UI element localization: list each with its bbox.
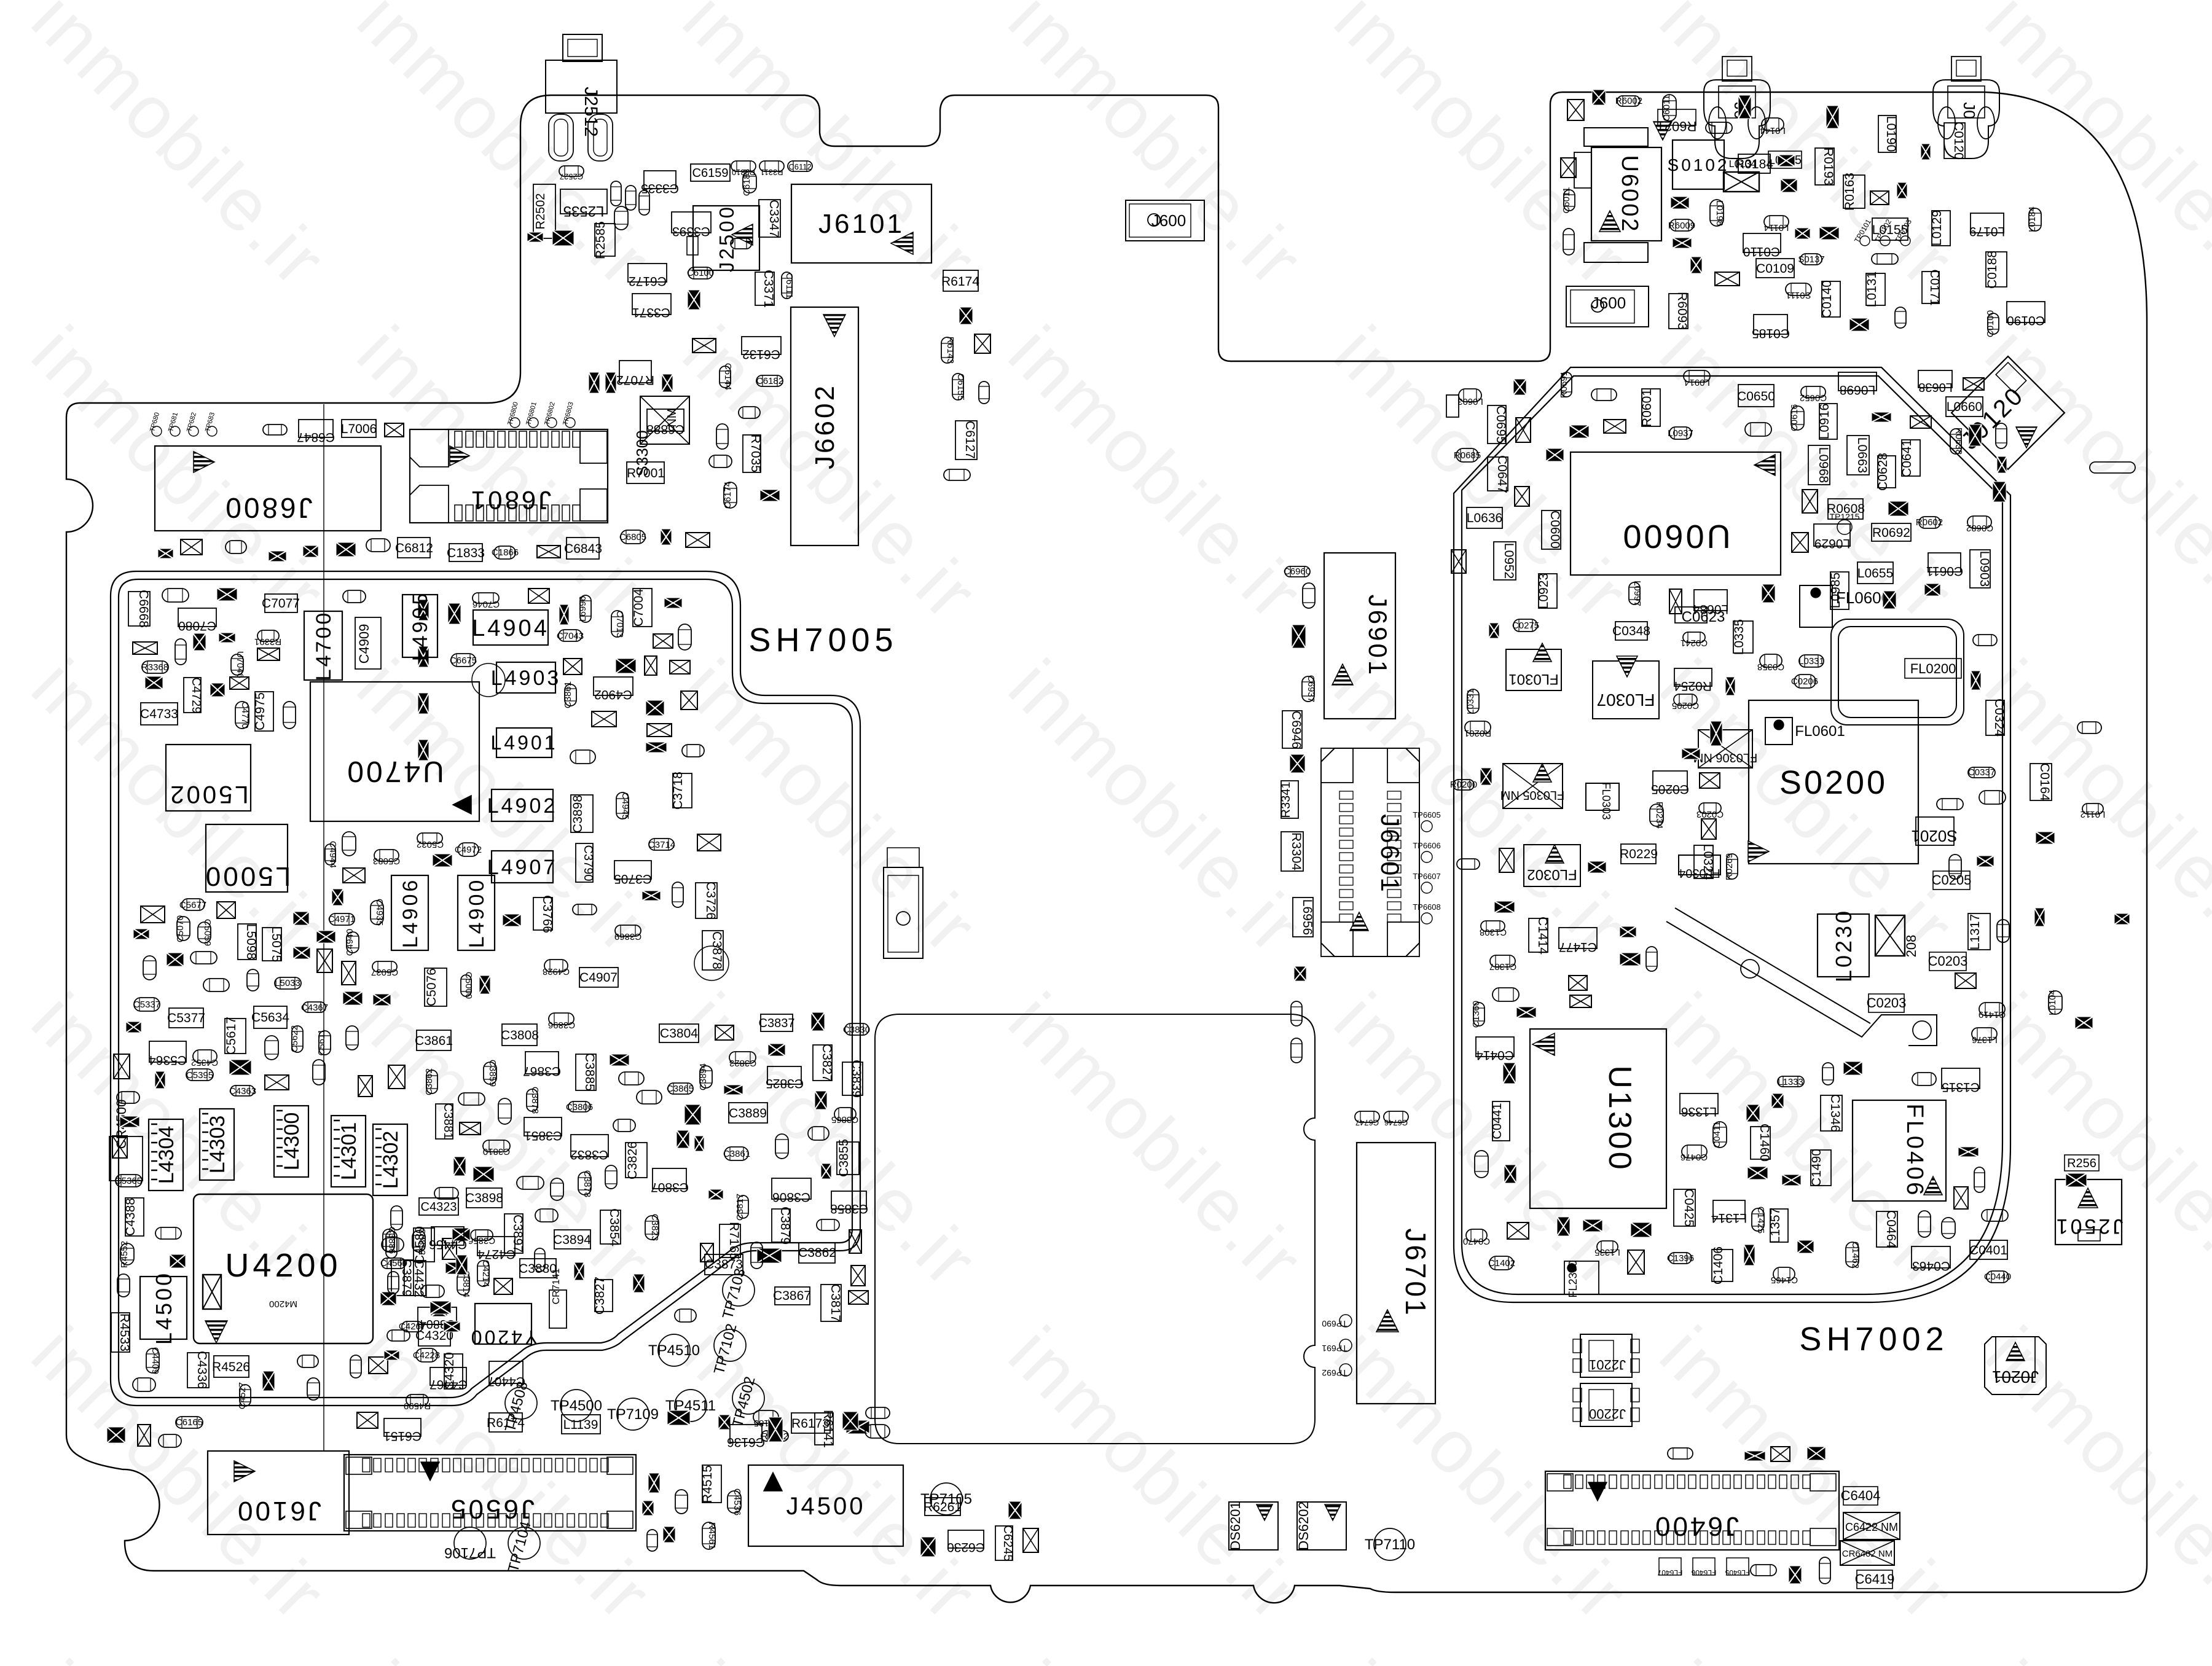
svg-text:R6174: R6174	[487, 1416, 525, 1430]
svg-text:C0205: C0205	[1651, 782, 1689, 796]
svg-text:C4971: C4971	[328, 914, 355, 925]
svg-text:C1387: C1387	[1489, 961, 1516, 972]
svg-text:DS6202: DS6202	[1296, 1501, 1311, 1551]
svg-text:L0603: L0603	[1457, 396, 1483, 407]
svg-text:C6937: C6937	[1306, 675, 1316, 702]
svg-text:C6136: C6136	[727, 1435, 765, 1449]
svg-text:L6956: L6956	[1300, 899, 1314, 935]
svg-text:C3823: C3823	[729, 1058, 756, 1068]
svg-text:C3832: C3832	[570, 1148, 608, 1162]
svg-text:C3806: C3806	[566, 1102, 593, 1113]
svg-text:R4561: R4561	[707, 1522, 717, 1549]
svg-text:L4300: L4300	[280, 1113, 304, 1171]
svg-text:L0190: L0190	[1884, 116, 1898, 152]
svg-text:C4388: C4388	[124, 1198, 138, 1236]
svg-text:C2527: C2527	[560, 172, 583, 181]
svg-text:C4536: C4536	[732, 1488, 742, 1515]
svg-text:C3826: C3826	[626, 1141, 640, 1179]
svg-text:C6151: C6151	[383, 1429, 422, 1443]
svg-text:FL0406: FL0406	[1902, 1104, 1928, 1198]
svg-text:C6111: C6111	[784, 273, 794, 299]
svg-text:L4303: L4303	[206, 1116, 229, 1174]
svg-text:J6602: J6602	[810, 383, 840, 469]
svg-text:L0112: L0112	[2081, 809, 2106, 819]
svg-text:J4500: J4500	[786, 1493, 866, 1520]
svg-text:C1425: C1425	[1755, 1206, 1766, 1234]
svg-text:TP6605: TP6605	[1413, 810, 1441, 819]
svg-text:L5000: L5000	[203, 861, 291, 891]
svg-text:L0903: L0903	[1977, 551, 1991, 587]
svg-text:C4729: C4729	[189, 678, 203, 714]
svg-text:S0200: S0200	[1779, 764, 1888, 801]
svg-text:R0229: R0229	[1620, 847, 1658, 861]
svg-text:S0111: S0111	[1786, 290, 1811, 300]
svg-text:C3869: C3869	[614, 931, 641, 942]
svg-text:C3371: C3371	[761, 270, 775, 308]
svg-text:C0109: C0109	[1756, 262, 1794, 276]
svg-text:C0611: C0611	[1926, 564, 1963, 578]
svg-text:L1333: L1333	[1778, 1077, 1803, 1087]
svg-text:C6165: C6165	[176, 1417, 203, 1428]
svg-text:R0608: R0608	[1827, 502, 1865, 516]
svg-text:C3897: C3897	[511, 1214, 525, 1253]
svg-text:R6143: R6143	[945, 337, 955, 364]
svg-text:U7046: U7046	[235, 651, 245, 678]
svg-text:R4533: R4533	[117, 1313, 131, 1351]
svg-text:C0414: C0414	[1476, 1048, 1514, 1062]
svg-text:C0337: C0337	[1968, 767, 1995, 778]
svg-text:FL0306 NM: FL0306 NM	[1693, 751, 1758, 764]
svg-text:DS6201: DS6201	[1228, 1501, 1243, 1551]
svg-text:M4200: M4200	[269, 1299, 297, 1309]
svg-text:C3894: C3894	[698, 1063, 708, 1090]
svg-text:R4515: R4515	[700, 1465, 715, 1503]
svg-text:L0129: L0129	[1930, 210, 1944, 246]
svg-text:C3889: C3889	[729, 1106, 767, 1120]
svg-text:U4200: U4200	[225, 1247, 341, 1284]
svg-text:R3304: R3304	[1289, 832, 1303, 870]
svg-text:C6159: C6159	[692, 166, 729, 180]
svg-text:C0401: C0401	[1969, 1243, 2007, 1257]
svg-text:J0201: J0201	[1992, 1367, 2039, 1386]
svg-text:C7046: C7046	[473, 599, 500, 609]
svg-text:C1477: C1477	[1559, 940, 1597, 954]
svg-text:C3817: C3817	[828, 1284, 842, 1322]
svg-text:C3898: C3898	[571, 795, 585, 833]
svg-text:C3808: C3808	[501, 1028, 539, 1042]
svg-text:R4599: R4599	[404, 1401, 431, 1411]
svg-text:C0616: C0616	[1789, 404, 1800, 431]
svg-text:C5377: C5377	[167, 1011, 205, 1025]
svg-text:C3766: C3766	[540, 895, 554, 933]
svg-text:C4367: C4367	[301, 1003, 328, 1013]
svg-text:L5075: L5075	[269, 926, 283, 962]
svg-text:C4274: C4274	[477, 1247, 516, 1261]
svg-text:C1402: C1402	[1488, 1258, 1515, 1269]
svg-text:L0198: L0198	[1714, 200, 1725, 226]
svg-text:C3885: C3885	[582, 1053, 597, 1091]
svg-text:R2502: R2502	[534, 194, 547, 230]
svg-text:L0952: L0952	[1502, 543, 1516, 579]
svg-text:C6960: C6960	[1284, 566, 1311, 577]
svg-text:C5083: C5083	[373, 856, 400, 866]
svg-text:R6002: R6002	[1615, 96, 1642, 106]
svg-text:C5611: C5611	[316, 1029, 327, 1055]
svg-text:R0201: R0201	[1464, 728, 1491, 738]
svg-text:C4907: C4907	[579, 971, 618, 985]
svg-text:C3862: C3862	[424, 1068, 434, 1095]
svg-text:C4580: C4580	[413, 1226, 427, 1264]
svg-text:C6183: C6183	[742, 169, 752, 196]
svg-text:U0600: U0600	[1620, 518, 1730, 555]
svg-text:C4407: C4407	[487, 1374, 525, 1388]
svg-text:CR6402 NM: CR6402 NM	[1842, 1549, 1893, 1559]
svg-text:L0698: L0698	[1840, 383, 1875, 397]
svg-text:C0203: C0203	[1928, 953, 1968, 969]
svg-text:FL0307: FL0307	[1597, 690, 1655, 710]
svg-text:TP690: TP690	[1322, 1319, 1347, 1329]
svg-text:TP7110: TP7110	[1365, 1536, 1415, 1553]
svg-text:C0682: C0682	[1966, 523, 1993, 533]
svg-text:C3851: C3851	[524, 1128, 562, 1143]
svg-text:C1866: C1866	[492, 547, 519, 558]
svg-text:TP6608: TP6608	[1413, 902, 1441, 912]
svg-text:R0602: R0602	[1916, 517, 1943, 528]
svg-text:R7072: R7072	[616, 373, 654, 387]
svg-text:R0601: R0601	[1640, 389, 1654, 427]
svg-text:C5000: C5000	[463, 972, 474, 999]
svg-text:C4467: C4467	[429, 1377, 468, 1391]
svg-text:C4733: C4733	[140, 707, 178, 721]
svg-text:C3790: C3790	[581, 845, 595, 882]
svg-text:C3881: C3881	[441, 1103, 455, 1140]
svg-text:L0131: L0131	[1865, 272, 1879, 307]
svg-text:C0275: C0275	[1512, 620, 1539, 631]
svg-text:C0425: C0425	[1682, 1189, 1696, 1227]
svg-text:C4432: C4432	[412, 1259, 426, 1297]
svg-text:R7035: R7035	[748, 434, 763, 472]
svg-text:C1414: C1414	[1535, 917, 1550, 955]
svg-text:C3859: C3859	[487, 1060, 498, 1087]
svg-text:SH7005: SH7005	[748, 622, 898, 659]
svg-text:C4409: C4409	[150, 1347, 160, 1374]
svg-text:C3825: C3825	[766, 1076, 804, 1090]
svg-text:L0985: L0985	[1829, 573, 1843, 608]
svg-text:C4770: C4770	[240, 702, 250, 729]
svg-text:J600: J600	[1591, 294, 1626, 312]
svg-text:J6100: J6100	[235, 1496, 321, 1526]
svg-text:C6888: C6888	[646, 422, 684, 436]
svg-text:TP691: TP691	[1322, 1343, 1347, 1353]
svg-text:C0650: C0650	[1737, 389, 1775, 404]
svg-text:L0155: L0155	[1872, 223, 1908, 237]
svg-text:C7013: C7013	[614, 611, 625, 638]
svg-text:C3827: C3827	[820, 1044, 834, 1082]
svg-text:C1465: C1465	[1771, 1275, 1798, 1285]
svg-text:C3718: C3718	[671, 772, 685, 810]
svg-text:C3705: C3705	[614, 872, 652, 886]
svg-text:C3839: C3839	[849, 1060, 863, 1098]
svg-text:C3878: C3878	[710, 931, 724, 969]
svg-text:C6805: C6805	[619, 532, 646, 542]
svg-text:L4904: L4904	[472, 616, 549, 641]
svg-text:R0254: R0254	[1674, 679, 1712, 693]
svg-text:C6230: C6230	[947, 1540, 985, 1554]
svg-text:C0695: C0695	[1494, 405, 1508, 444]
svg-text:C6245: C6245	[1001, 1525, 1014, 1562]
svg-text:J2512: J2512	[581, 87, 601, 137]
svg-text:C3898: C3898	[465, 1191, 503, 1205]
svg-text:C0203: C0203	[1696, 809, 1724, 819]
svg-text:FL0601: FL0601	[1795, 723, 1845, 740]
svg-text:C4940: C4940	[345, 929, 355, 956]
svg-text:L0968: L0968	[1816, 447, 1830, 483]
svg-text:TP692: TP692	[1322, 1368, 1347, 1378]
svg-text:R0184: R0184	[1735, 157, 1773, 171]
svg-text:L0184: L0184	[2027, 206, 2037, 232]
svg-text:C7004: C7004	[632, 589, 646, 627]
svg-text:C4228: C4228	[413, 1350, 440, 1361]
svg-text:TP7106: TP7106	[444, 1544, 496, 1561]
svg-text:C3837: C3837	[759, 1017, 795, 1030]
svg-text:C5059: C5059	[202, 919, 213, 946]
svg-text:TP4510: TP4510	[648, 1342, 700, 1359]
svg-text:L0144: L0144	[1760, 125, 1786, 136]
svg-text:C0358: C0358	[1757, 662, 1784, 672]
svg-text:C3861: C3861	[415, 1034, 453, 1048]
svg-text:C4352: C4352	[191, 1057, 218, 1068]
svg-text:C3714: C3714	[648, 840, 675, 850]
svg-text:FL6405: FL6405	[1725, 1568, 1750, 1577]
svg-text:R2585: R2585	[594, 221, 608, 259]
svg-text:C3861: C3861	[723, 1149, 750, 1159]
svg-text:FL0303: FL0303	[1600, 782, 1612, 819]
svg-text:R6261: R6261	[924, 1500, 962, 1514]
svg-text:C6011: C6011	[1661, 95, 1672, 121]
svg-text:C1346: C1346	[1828, 1094, 1842, 1132]
svg-text:C1462: C1462	[1850, 1242, 1861, 1269]
svg-text:C6419: C6419	[1855, 1571, 1895, 1587]
svg-text:L4301: L4301	[337, 1122, 361, 1181]
svg-text:C3830: C3830	[843, 1025, 870, 1035]
svg-text:R0234: R0234	[1654, 802, 1665, 829]
svg-text:C4214: C4214	[480, 1260, 491, 1287]
svg-text:C5032: C5032	[417, 839, 444, 850]
svg-text:C3393: C3393	[672, 224, 710, 238]
svg-text:J6400: J6400	[1653, 1511, 1739, 1541]
svg-text:C5395: C5395	[186, 1070, 213, 1081]
svg-text:L0114: L0114	[1764, 222, 1789, 233]
svg-text:J6101: J6101	[818, 209, 904, 239]
svg-text:C0463: C0463	[1912, 1259, 1950, 1273]
svg-text:C3335: C3335	[641, 181, 679, 195]
svg-text:J6701: J6701	[1400, 1228, 1432, 1317]
svg-text:C0600: C0600	[1548, 510, 1562, 549]
svg-text:C4336: C4336	[195, 1351, 209, 1389]
svg-text:L0916: L0916	[1818, 404, 1832, 439]
svg-text:R0200: R0200	[1450, 780, 1477, 790]
svg-text:R3391: R3391	[254, 636, 281, 647]
svg-text:L1314: L1314	[1711, 1211, 1747, 1225]
svg-text:L0655: L0655	[1857, 566, 1893, 581]
svg-text:U1300: U1300	[1602, 1065, 1637, 1171]
svg-text:L0997: L0997	[1632, 581, 1642, 606]
svg-text:C0441: C0441	[1491, 1103, 1504, 1140]
svg-text:FL0302: FL0302	[1527, 866, 1577, 883]
svg-text:J6901: J6901	[1363, 595, 1392, 677]
svg-text:C3894: C3894	[553, 1233, 591, 1247]
svg-text:FL6406: FL6406	[1691, 1568, 1716, 1577]
svg-text:TP4500: TP4500	[551, 1398, 602, 1414]
svg-text:C6100: C6100	[687, 268, 714, 278]
svg-text:L0629: L0629	[1814, 536, 1850, 550]
svg-text:R4526: R4526	[212, 1360, 250, 1374]
svg-text:TP6607: TP6607	[1413, 872, 1441, 881]
svg-text:C4944: C4944	[327, 841, 338, 868]
svg-text:C0348: C0348	[1612, 624, 1650, 638]
svg-text:C6946: C6946	[1289, 711, 1303, 749]
svg-text:R6093: R6093	[1675, 292, 1689, 330]
svg-text:U6002: U6002	[1617, 155, 1642, 233]
svg-text:C4456: C4456	[429, 1237, 467, 1251]
svg-text:R3368: R3368	[141, 662, 168, 673]
svg-text:L0663: L0663	[1855, 437, 1869, 473]
svg-text:C6668: C6668	[136, 590, 151, 628]
svg-text:FL2300: FL2300	[1567, 1260, 1579, 1297]
svg-text:L7006: L7006	[341, 422, 377, 436]
svg-text:L0104: L0104	[2047, 990, 2058, 1015]
svg-text:C0324: C0324	[1992, 698, 2006, 737]
svg-text:J2200: J2200	[1589, 1406, 1626, 1422]
svg-text:L0684: L0684	[1692, 602, 1728, 616]
svg-text:L0638: L0638	[1918, 380, 1953, 394]
svg-text:C1490: C1490	[1810, 1149, 1824, 1187]
svg-text:C3810: C3810	[483, 1146, 510, 1157]
svg-text:C1460: C1460	[1757, 1124, 1771, 1162]
svg-text:C6404: C6404	[1841, 1488, 1881, 1503]
svg-text:C6132: C6132	[742, 347, 780, 361]
svg-text:L4907: L4907	[487, 856, 558, 879]
svg-text:C1315: C1315	[1942, 1080, 1980, 1094]
svg-text:C7080: C7080	[178, 619, 216, 633]
svg-text:L0331: L0331	[1465, 689, 1476, 714]
svg-text:C0190: C0190	[2007, 313, 2045, 327]
svg-text:R6173: R6173	[791, 1417, 829, 1431]
svg-text:C3865: C3865	[831, 1114, 858, 1125]
svg-text:L1336: L1336	[1681, 1105, 1717, 1119]
svg-text:C3878: C3878	[582, 1170, 592, 1197]
svg-text:L0324: L0324	[1701, 844, 1715, 880]
svg-text:C3862: C3862	[798, 1246, 836, 1260]
svg-text:C0205: C0205	[1932, 872, 1972, 888]
svg-text:J2201: J2201	[1589, 1357, 1626, 1372]
svg-text:R6174: R6174	[941, 275, 979, 289]
svg-text:C1833: C1833	[447, 546, 485, 560]
svg-text:C0205: C0205	[1672, 700, 1699, 711]
svg-text:C0641: C0641	[1900, 439, 1914, 477]
svg-text:R4552: R4552	[119, 1241, 130, 1268]
svg-text:C3347: C3347	[767, 200, 781, 238]
svg-text:L0660: L0660	[1947, 400, 1982, 414]
svg-text:C3865: C3865	[667, 1084, 694, 1094]
svg-text:C3726: C3726	[704, 882, 718, 920]
svg-text:L1335: L1335	[1594, 1247, 1620, 1257]
svg-text:C4527: C4527	[237, 1382, 248, 1409]
svg-text:C0140: C0140	[1820, 280, 1834, 318]
svg-text:C5037: C5037	[371, 967, 398, 977]
svg-text:C6112: C6112	[788, 162, 811, 171]
svg-text:SH7002: SH7002	[1799, 1321, 1948, 1358]
svg-text:TP6606: TP6606	[1413, 841, 1441, 850]
svg-text:C5364: C5364	[149, 1053, 187, 1067]
svg-text:FL0301: FL0301	[1508, 671, 1558, 687]
svg-text:L5033: L5033	[275, 978, 300, 988]
svg-text:C4902: C4902	[594, 687, 632, 702]
svg-text:C6011: C6011	[1561, 187, 1572, 213]
svg-text:J6801: J6801	[469, 486, 551, 515]
svg-text:L0335: L0335	[1732, 619, 1746, 655]
svg-text:C6127: C6127	[963, 421, 977, 459]
svg-text:R6009: R6009	[1668, 221, 1695, 231]
svg-text:C4323: C4323	[421, 1200, 457, 1214]
svg-text:L4900: L4900	[465, 878, 488, 948]
svg-text:C3817: C3817	[735, 1194, 745, 1221]
svg-text:L5002: L5002	[168, 781, 248, 808]
svg-text:C0476: C0476	[1681, 1152, 1708, 1162]
svg-text:C7077: C7077	[262, 596, 300, 611]
svg-text:L4905: L4905	[409, 591, 432, 662]
svg-text:L4901: L4901	[491, 732, 558, 754]
svg-text:C0647: C0647	[1495, 455, 1509, 493]
svg-text:C6746: C6746	[1384, 1118, 1408, 1127]
svg-text:C1419: C1419	[1979, 1009, 2006, 1020]
svg-text:C0185: C0185	[1752, 326, 1790, 340]
svg-text:L4500: L4500	[151, 1271, 176, 1345]
svg-text:C4975: C4975	[253, 692, 267, 730]
svg-text:C5634: C5634	[251, 1011, 289, 1025]
svg-text:R0269: R0269	[1724, 853, 1735, 880]
svg-text:C6144: C6144	[723, 363, 733, 390]
svg-text:C6172: C6172	[629, 274, 667, 288]
svg-text:C0120: C0120	[1951, 122, 1966, 160]
svg-text:C0206: C0206	[1791, 676, 1818, 687]
svg-text:C3804: C3804	[660, 1027, 698, 1041]
svg-text:C5365: C5365	[115, 1176, 142, 1186]
svg-text:208: 208	[1904, 935, 1919, 958]
svg-text:FL0305 NM: FL0305 NM	[1500, 788, 1565, 802]
svg-text:C6747: C6747	[1355, 1118, 1379, 1127]
svg-text:C3823: C3823	[649, 1214, 660, 1241]
svg-text:J6505: J6505	[449, 1494, 535, 1524]
svg-text:C0652: C0652	[1800, 393, 1827, 403]
svg-text:C3880: C3880	[519, 1262, 557, 1276]
svg-text:C6155: C6155	[955, 373, 966, 401]
svg-text:C0440: C0440	[1984, 1272, 2011, 1282]
svg-text:C3806: C3806	[772, 1190, 810, 1204]
svg-text:L0331: L0331	[1798, 656, 1824, 667]
svg-text:C0110: C0110	[1743, 244, 1780, 259]
svg-text:L4302: L4302	[379, 1131, 402, 1189]
svg-text:C0470: C0470	[1463, 1236, 1490, 1246]
svg-text:L5098: L5098	[244, 924, 258, 960]
svg-text:C5677: C5677	[179, 900, 206, 910]
svg-text:R0193: R0193	[1821, 147, 1835, 186]
svg-text:L0914: L0914	[1684, 377, 1710, 388]
svg-text:C7043: C7043	[557, 631, 584, 641]
svg-text:C0628: C0628	[1876, 453, 1890, 491]
svg-text:L1357: L1357	[1768, 1208, 1783, 1243]
svg-text:C6847: C6847	[297, 430, 335, 444]
